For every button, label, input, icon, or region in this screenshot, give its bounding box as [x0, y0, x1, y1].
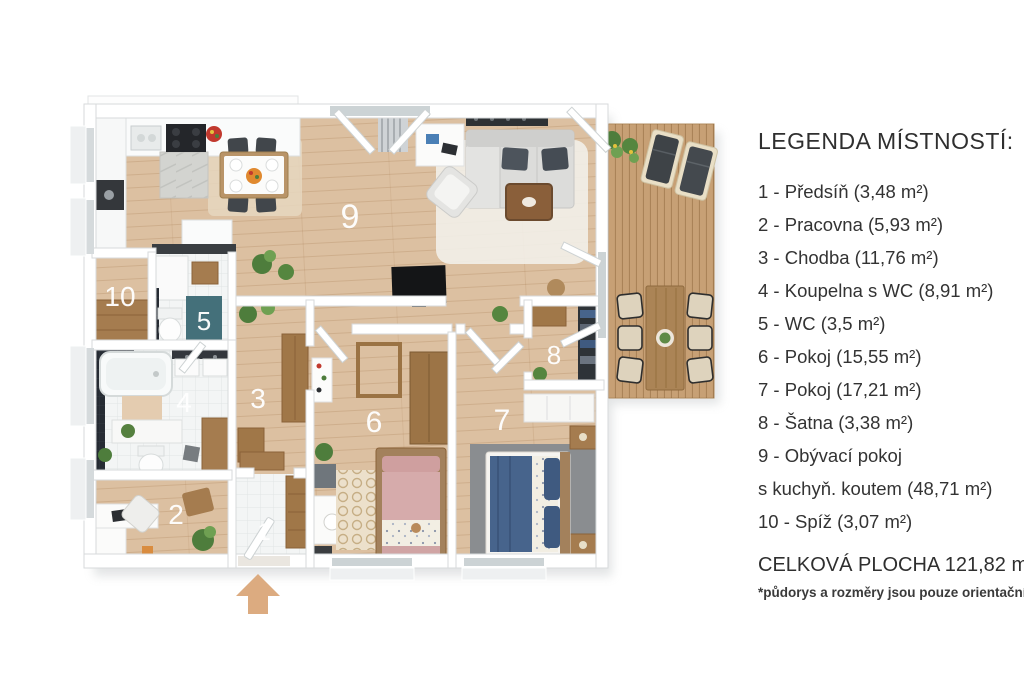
window-glass-bottom-1 [332, 558, 412, 566]
bedroom6-rug [336, 470, 380, 550]
wall-corridor-6 [352, 324, 452, 334]
legend-item-9: 9 - Obývací pokoj [758, 439, 1024, 472]
french-door-glass-top [330, 106, 430, 116]
legend: LEGENDA MÍSTNOSTÍ: 1 - Předsíň (3,48 m²)… [758, 128, 1024, 600]
wall-8-bottom [524, 380, 604, 390]
legend-title: LEGENDA MÍSTNOSTÍ: [758, 128, 1024, 155]
wall-6-7 [448, 332, 456, 568]
bedroom6-plant [315, 443, 333, 461]
teddy-bear [411, 523, 421, 533]
sofa-cushion-dark-2 [541, 147, 569, 171]
legend-item-1: 1 - Předsíň (3,48 m²) [758, 175, 1024, 208]
wall-4-2 [92, 470, 232, 480]
wall-5-4 [92, 340, 236, 350]
wall-hall-entry-a [236, 468, 254, 478]
wall-5-hall [228, 252, 236, 346]
bedroom7-pillow-1 [544, 458, 560, 500]
room-label-6: 6 [366, 406, 383, 439]
bedroom7-double-bed [486, 452, 570, 556]
room-label-4: 4 [176, 387, 192, 418]
coffee-table [506, 184, 552, 220]
office-desk-return [96, 528, 126, 556]
bath-stool [183, 445, 200, 462]
window-glass-left-4 [86, 460, 94, 518]
fruit-bowl [246, 168, 262, 184]
legend-item-7: 7 - Pokoj (17,21 m²) [758, 373, 1024, 406]
cooking-pot [206, 126, 222, 142]
wall-corridor-7-a [456, 324, 465, 334]
pass-through-counter [152, 244, 236, 254]
wall-8-left-a [524, 300, 532, 338]
window-glass-bottom-2 [464, 558, 544, 566]
bath-mat [122, 396, 162, 422]
bedroom7-white-wardrobe [524, 394, 594, 422]
wall-hall-6-b [306, 390, 314, 568]
bedroom6-floral-throw [382, 520, 440, 546]
window-sill-left-2 [70, 198, 86, 256]
window-glass-left-1 [86, 128, 94, 182]
room-label-5: 5 [197, 306, 211, 336]
room-label-1: 1 [257, 519, 270, 546]
kitchen-counter-corner [160, 152, 208, 198]
bedroom6-blanket [382, 472, 440, 520]
wall-10-5 [148, 252, 156, 346]
bathtub [100, 352, 172, 396]
bath-vanity [112, 420, 182, 443]
wall-hall-6-a [306, 300, 314, 346]
legend-item-4: 4 - Koupelna s WC (8,91 m²) [758, 274, 1024, 307]
hall-plant-1 [239, 305, 257, 323]
sofa-cushion-dark-1 [501, 147, 528, 171]
hall-plant-3 [492, 306, 508, 322]
wall-4-hall [228, 340, 236, 568]
living-desk [416, 124, 464, 166]
wc-toilet [159, 318, 181, 342]
legend-item-5: 5 - WC (3,5 m²) [758, 307, 1024, 340]
bedroom6-bed [376, 448, 446, 560]
bedroom6-shelf [312, 358, 332, 402]
wc-toilet-tank [158, 308, 182, 319]
closet-plant [533, 367, 547, 381]
entrance-arrow [236, 574, 280, 614]
floor-plan-page: 1 2 3 4 5 6 7 8 9 10 LEGENDA MÍSTNOSTÍ: … [0, 0, 1024, 683]
window-sill-bottom-2 [462, 568, 546, 580]
room-label-2: 2 [168, 499, 184, 530]
legend-item-2: 2 - Pracovna (5,93 m²) [758, 208, 1024, 241]
legend-total-area: CELKOVÁ PLOCHA 121,82 m² [758, 552, 1024, 578]
bedroom7-pillow-2 [544, 506, 560, 548]
wc-cabinet [156, 256, 188, 300]
legend-disclaimer: *půdorys a rozměry jsou pouze orientační [758, 585, 1024, 600]
room-label-7: 7 [494, 404, 511, 437]
entry-bench [240, 452, 284, 470]
wc-stool [192, 262, 218, 284]
window-sill-left-4 [70, 458, 86, 520]
stove-cooktop [166, 124, 206, 152]
legend-item-9-line2: s kuchyň. koutem (48,71 m²) [758, 472, 1024, 505]
bedroom7-headboard [560, 452, 570, 556]
window-sill-bottom-1 [330, 568, 414, 580]
wall-b-left [236, 296, 446, 306]
wall-a [92, 248, 156, 258]
side-stool [547, 279, 565, 297]
legend-item-3: 3 - Chodba (11,76 m²) [758, 241, 1024, 274]
kitchen-island [182, 220, 232, 248]
legend-item-6: 6 - Pokoj (15,55 m²) [758, 340, 1024, 373]
bedroom6-pillow [382, 456, 440, 472]
room-label-3: 3 [250, 383, 266, 414]
terrace [602, 124, 718, 398]
window-glass-left-2 [86, 200, 94, 254]
legend-item-10: 10 - Spíž (3,07 m²) [758, 505, 1024, 538]
window-sill-left-3 [70, 346, 86, 426]
window-sill-left-1 [70, 126, 86, 184]
window-glass-left-3 [86, 348, 94, 424]
kitchen-sink [131, 126, 161, 150]
room-label-8: 8 [547, 340, 561, 370]
legend-item-8: 8 - Šatna (3,38 m²) [758, 406, 1024, 439]
terrace-dining-set [617, 286, 714, 390]
room-label-9: 9 [341, 198, 360, 236]
bedroom6-chair [314, 464, 336, 488]
room-label-10: 10 [104, 281, 135, 312]
bath-plant [98, 448, 112, 462]
